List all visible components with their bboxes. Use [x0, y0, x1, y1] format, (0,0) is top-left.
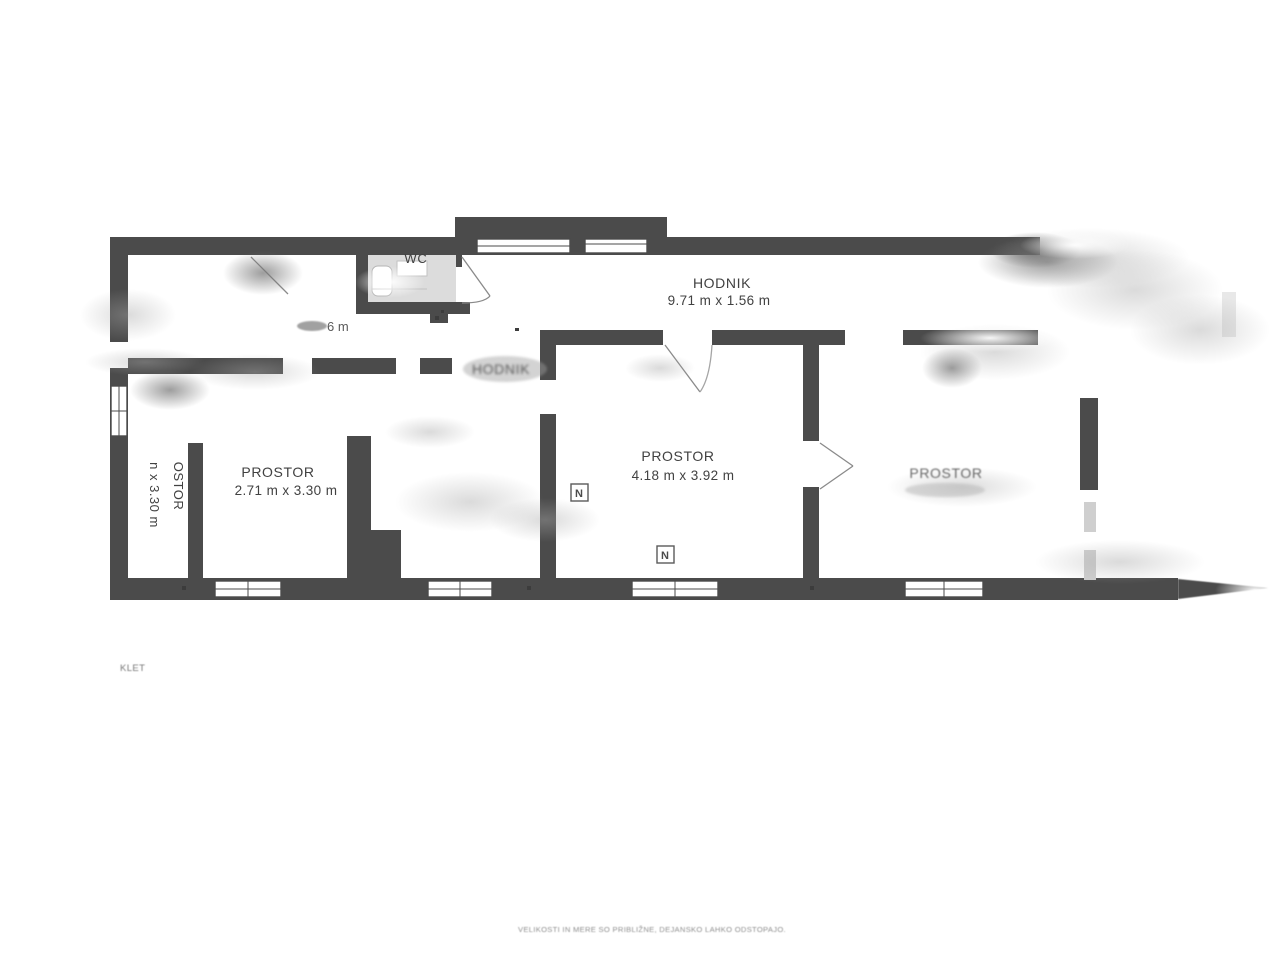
tick: [441, 310, 444, 313]
smudge: [1130, 295, 1270, 365]
room-dim-prostor-narrow: n x 3.30 m: [147, 462, 162, 528]
room-label-hodnik-small: HODNIK: [472, 361, 530, 377]
smudge: [625, 354, 695, 382]
tick: [527, 586, 531, 590]
room-label-prostor-right: PROSTOR: [909, 465, 982, 481]
room-label-prostor-narrow: OSTOR: [171, 462, 186, 511]
window-symbol: [111, 386, 127, 436]
smudge: [385, 416, 475, 448]
door-swing: [820, 443, 853, 489]
room-dim-prostor-left: 2.71 m x 3.30 m: [235, 483, 338, 498]
room-label-prostor-left: PROSTOR: [241, 464, 314, 480]
room-label-hodnik-main: HODNIK: [693, 275, 751, 291]
smudge: [1020, 231, 1130, 259]
smudge: [297, 321, 327, 331]
wall: [188, 443, 203, 580]
window-symbol: [477, 239, 570, 253]
room-label-wc: WC: [404, 251, 427, 266]
room-label-prostor-middle: PROSTOR: [641, 448, 714, 464]
floor-plan: WC HODNIK 9.71 m x 1.56 m HODNIK PROSTOR…: [0, 0, 1280, 959]
dimension-ticks: [182, 310, 814, 590]
radiator-symbol-letter: N: [661, 550, 669, 562]
floor-plan-svg: WC HODNIK 9.71 m x 1.56 m HODNIK PROSTOR…: [0, 0, 1280, 954]
floor-label: KLET: [120, 663, 145, 674]
wall-fragment: [1084, 502, 1096, 532]
window-symbol: [632, 581, 718, 597]
smudge: [190, 354, 320, 390]
window-symbol: [585, 239, 647, 253]
smudge: [1035, 540, 1205, 584]
smudge: [223, 251, 303, 295]
wall: [540, 330, 663, 345]
smudge-artifacts: [80, 228, 1280, 605]
smudge: [905, 483, 985, 497]
wall: [371, 530, 401, 580]
room-dim-prostor-middle: 4.18 m x 3.92 m: [632, 468, 735, 483]
wall: [803, 330, 819, 441]
wall: [455, 217, 667, 237]
wall: [712, 330, 845, 345]
tick: [810, 586, 814, 590]
disclaimer-text: VELIKOSTI IN MERE SO PRIBLIŽNE, DEJANSKO…: [518, 925, 786, 934]
tick: [182, 586, 186, 590]
tick: [435, 316, 439, 320]
window-symbol: [215, 581, 281, 597]
dimension-remnant: 6 m: [327, 319, 349, 334]
smudge: [1215, 575, 1280, 605]
smudge: [920, 324, 1060, 352]
smudge: [922, 348, 982, 388]
window-symbol: [905, 581, 983, 597]
wall: [347, 436, 371, 580]
smudge: [355, 266, 425, 298]
wall: [1080, 398, 1098, 490]
room-dim-hodnik-main: 9.71 m x 1.56 m: [668, 293, 771, 308]
wall: [420, 358, 452, 374]
wall: [356, 302, 470, 314]
tick: [515, 328, 519, 331]
smudge: [85, 348, 205, 376]
radiator-symbol-letter: N: [575, 488, 583, 500]
smudge: [490, 498, 600, 542]
door-swing: [462, 257, 490, 303]
window-symbol: [428, 581, 492, 597]
wall: [803, 487, 819, 580]
wall: [312, 358, 396, 374]
smudge: [80, 289, 176, 341]
